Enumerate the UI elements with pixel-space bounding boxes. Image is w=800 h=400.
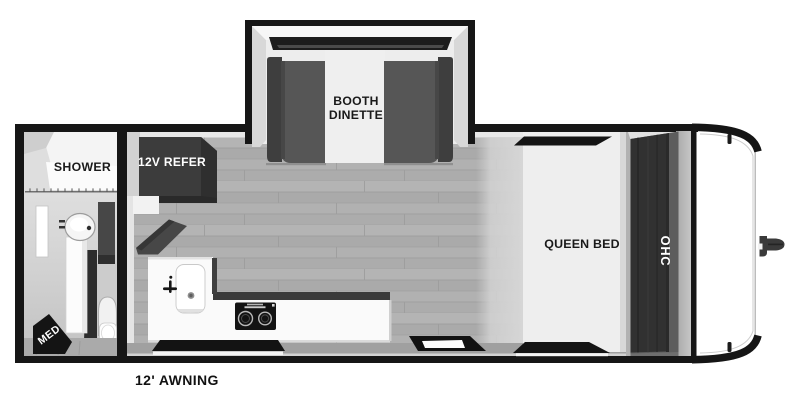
svg-text:12V REFER: 12V REFER bbox=[138, 155, 206, 169]
svg-text:QUEEN BED: QUEEN BED bbox=[544, 237, 619, 251]
svg-text:12' AWNING: 12' AWNING bbox=[135, 372, 219, 388]
svg-text:BOOTH: BOOTH bbox=[333, 94, 379, 108]
svg-text:DINETTE: DINETTE bbox=[329, 108, 383, 122]
svg-text:OHC: OHC bbox=[658, 236, 673, 267]
svg-text:SHOWER: SHOWER bbox=[54, 160, 111, 174]
